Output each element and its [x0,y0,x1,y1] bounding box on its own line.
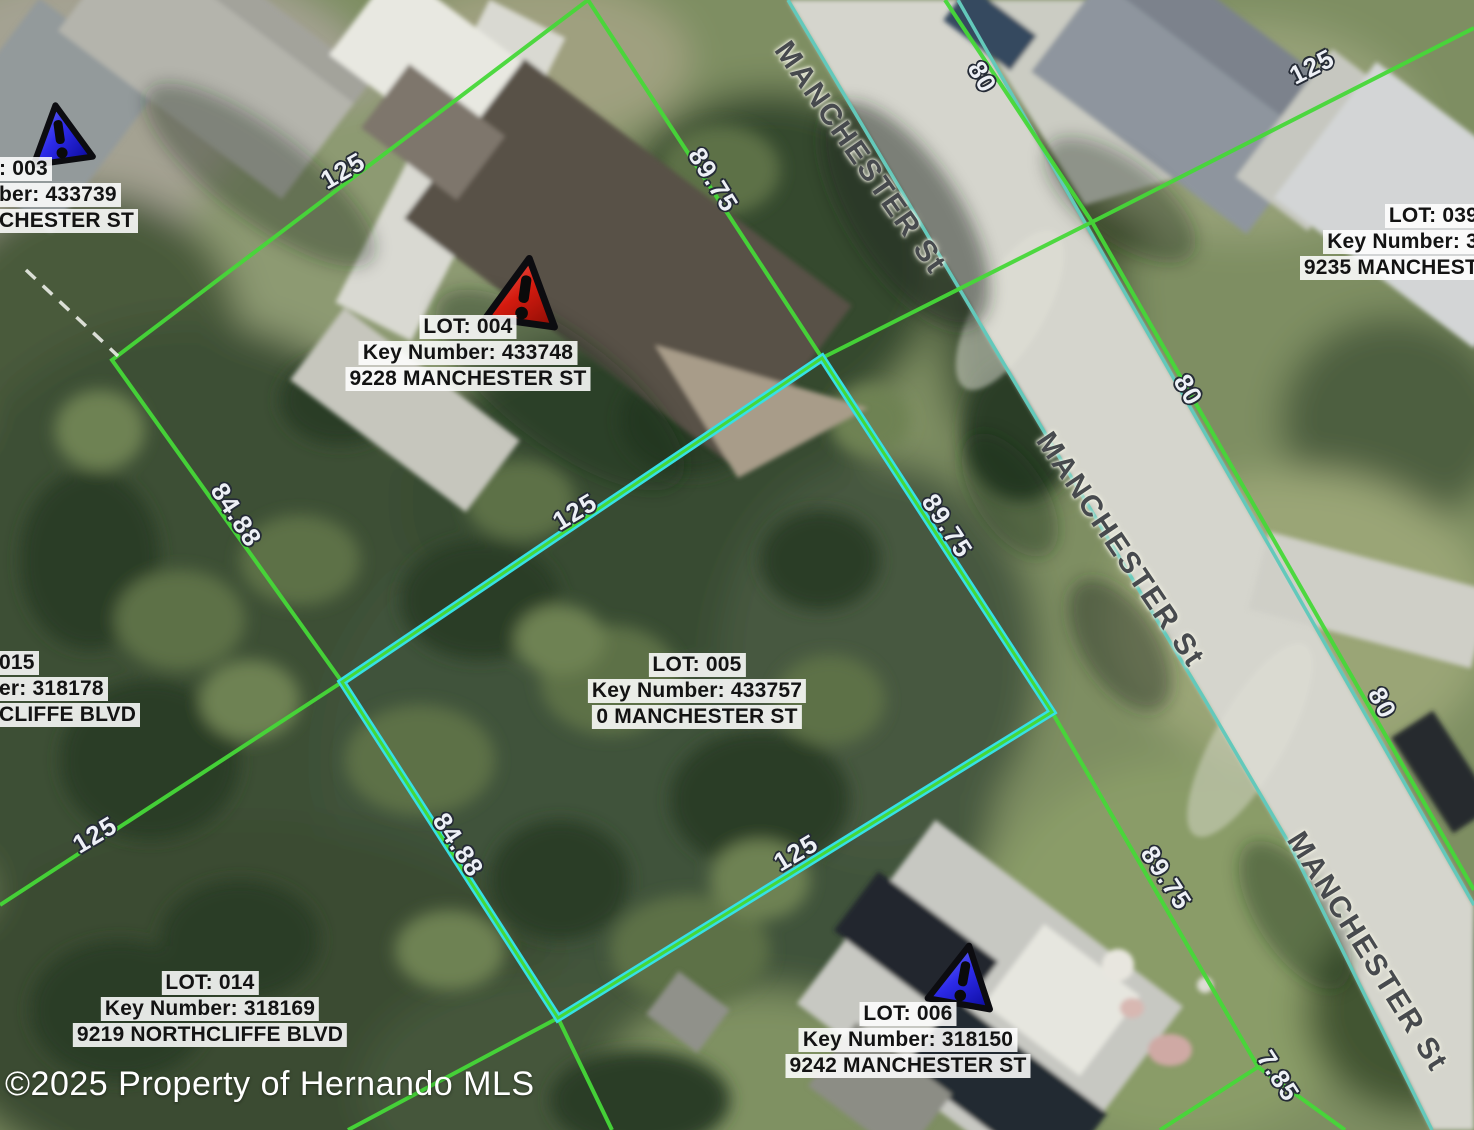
parcel-lot-number: LOT: 005 [648,653,745,677]
parcel-key-number: Key Number: 318150 [799,1028,1017,1052]
parcel-address: 9235 MANCHEST [1300,256,1474,280]
parcel-lot-number: LOT: 004 [419,315,516,339]
parcel-key-number: ber: 433739 [0,183,121,207]
parcel-key-number: er: 318178 [0,677,108,701]
copyright-watermark: ©2025 Property of Hernando MLS [5,1065,535,1104]
parcel-key-number: Key Number: 3 [1323,230,1474,254]
parcel-label-lot-004: LOT: 004 Key Number: 433748 9228 MANCHES… [346,314,591,392]
parcel-lot-number: LOT: 014 [161,971,258,995]
parcel-address: 9242 MANCHESTER ST [786,1054,1031,1078]
parcel-key-number: Key Number: 433757 [588,679,806,703]
parcel-key-number: Key Number: 318169 [101,997,319,1021]
parcel-key-number: Key Number: 433748 [359,341,577,365]
map-viewport[interactable]: : 003 ber: 433739 CHESTER ST LOT: 004 Ke… [0,0,1474,1130]
parcel-address: 0 MANCHESTER ST [592,705,801,729]
parcel-lot-number: 015 [0,651,39,675]
parcel-label-lot-014: LOT: 014 Key Number: 318169 9219 NORTHCL… [73,970,347,1048]
parcel-label-lot-015: 015 er: 318178 CLIFFE BLVD [0,650,140,728]
aerial-imagery [0,0,1474,1130]
parcel-lot-number: LOT: 006 [859,1002,956,1026]
parcel-label-lot-003: : 003 ber: 433739 CHESTER ST [0,156,138,234]
parcel-address: CHESTER ST [0,209,138,233]
parcel-lot-number: : 003 [0,157,52,181]
parcel-address: CLIFFE BLVD [0,703,140,727]
parcel-label-lot-039: LOT: 039 Key Number: 3 9235 MANCHEST [1300,203,1474,281]
parcel-address: 9219 NORTHCLIFFE BLVD [73,1023,347,1047]
parcel-label-lot-006: LOT: 006 Key Number: 318150 9242 MANCHES… [786,1001,1031,1079]
parcel-lot-number: LOT: 039 [1385,204,1474,228]
parcel-address: 9228 MANCHESTER ST [346,367,591,391]
parcel-label-lot-005: LOT: 005 Key Number: 433757 0 MANCHESTER… [588,652,806,730]
